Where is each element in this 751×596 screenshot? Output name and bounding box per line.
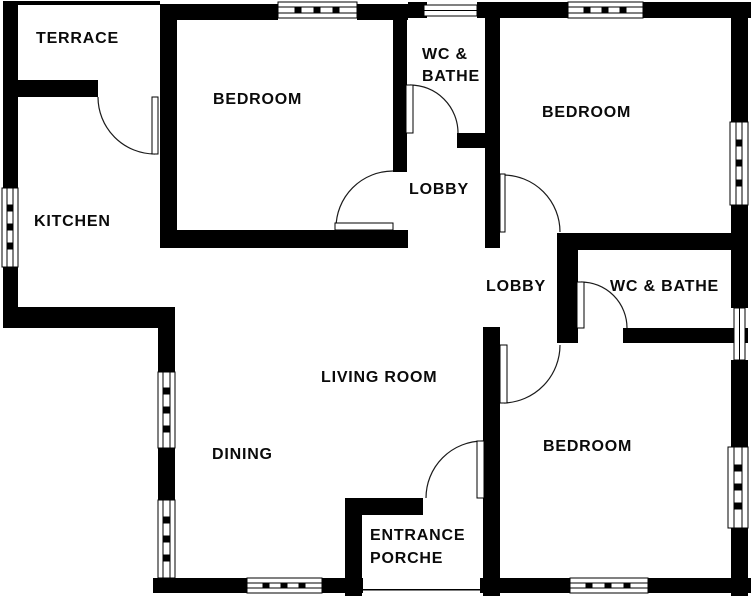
wall-porch-west bbox=[345, 498, 362, 596]
window-bedroom3-south-icon bbox=[570, 578, 648, 593]
wall-west-outer bbox=[3, 3, 18, 328]
window-kitchen-west-icon bbox=[2, 188, 18, 267]
wall-spine-lower bbox=[483, 327, 500, 596]
wall-bedroom1-south bbox=[160, 230, 408, 248]
room-label-entrance-porch: ENTRANCE PORCHE bbox=[370, 524, 465, 570]
room-label-living-room: LIVING ROOM bbox=[321, 370, 437, 386]
room-label-dining: DINING bbox=[212, 447, 273, 463]
window-dining-west-lower-icon bbox=[158, 500, 175, 578]
door-living-lobby-top bbox=[335, 171, 393, 230]
floor-plan: TERRACE BEDROOM WC & BATHE BEDROOM KITCH… bbox=[0, 0, 751, 596]
door-bedroom-top-right bbox=[500, 174, 560, 232]
door-entrance-front bbox=[426, 441, 484, 498]
porch-step-line bbox=[363, 589, 480, 591]
door-bedroom-bottom-right bbox=[500, 345, 560, 403]
window-dining-west-upper-icon bbox=[158, 372, 175, 448]
room-label-bedroom-top-left: BEDROOM bbox=[213, 92, 302, 108]
door-terrace-kitchen bbox=[98, 97, 158, 154]
door-leaf bbox=[152, 97, 158, 154]
room-label-bedroom-top-right: BEDROOM bbox=[542, 105, 631, 121]
wall-east-2 bbox=[731, 205, 748, 308]
room-label-kitchen: KITCHEN bbox=[34, 214, 111, 230]
wall-south-1 bbox=[153, 578, 247, 593]
door-arc bbox=[98, 97, 155, 154]
wall-bedroom1-east bbox=[393, 15, 407, 172]
wall-bedroom2-south bbox=[557, 233, 748, 250]
door-wc-bathe-top bbox=[406, 85, 458, 133]
room-label-lobby-top: LOBBY bbox=[409, 182, 469, 198]
wall-bedroom1-west bbox=[160, 4, 177, 248]
door-leaf bbox=[477, 441, 484, 498]
wall-lobby2-east bbox=[557, 233, 578, 343]
room-label-wc-bathe-right: WC & BATHE bbox=[610, 279, 719, 295]
wall-north-4 bbox=[477, 2, 568, 18]
room-label-terrace: TERRACE bbox=[36, 31, 119, 47]
window-wc1-north-icon bbox=[424, 5, 477, 16]
wall-east-1 bbox=[731, 3, 748, 122]
door-arc bbox=[503, 175, 560, 232]
doors bbox=[98, 85, 627, 498]
door-leaf bbox=[500, 345, 507, 403]
wall-wc2-south bbox=[623, 328, 748, 343]
window-bedroom2-east-icon bbox=[730, 122, 748, 205]
door-leaf bbox=[577, 282, 584, 328]
window-bedroom2-north-icon bbox=[568, 2, 643, 18]
walls bbox=[3, 1, 751, 596]
wall-east-3 bbox=[731, 360, 748, 447]
door-arc bbox=[336, 171, 393, 228]
room-label-bedroom-bottom-right: BEDROOM bbox=[543, 439, 632, 455]
door-arc bbox=[504, 345, 560, 403]
wall-spine-upper bbox=[485, 17, 500, 248]
room-label-entrance-porch-line2: PORCHE bbox=[370, 547, 465, 570]
room-label-wc-bathe-top-line1: WC & bbox=[422, 44, 480, 66]
floor-plan-structure bbox=[0, 0, 751, 596]
window-wc2-east-icon bbox=[734, 308, 745, 360]
door-leaf bbox=[500, 174, 505, 232]
window-bedroom3-east-icon bbox=[728, 447, 748, 528]
door-leaf bbox=[335, 223, 393, 230]
room-label-lobby-right: LOBBY bbox=[486, 279, 546, 295]
wall-west-main-pier bbox=[158, 448, 175, 500]
wall-kitchen-south bbox=[3, 307, 175, 328]
wall-terrace-kitchen bbox=[3, 80, 98, 97]
door-arc bbox=[410, 85, 458, 133]
window-dining-south-icon bbox=[247, 578, 322, 593]
wall-terrace-north bbox=[3, 1, 160, 5]
window-bedroom1-north-icon bbox=[278, 2, 357, 18]
room-label-wc-bathe-top-line2: BATHE bbox=[422, 66, 480, 88]
wall-north-1 bbox=[160, 4, 278, 20]
room-label-wc-bathe-top: WC & BATHE bbox=[422, 44, 480, 88]
wall-east-4 bbox=[731, 528, 748, 596]
wall-west-main-upper bbox=[158, 307, 175, 372]
room-label-entrance-porch-line1: ENTRANCE bbox=[370, 524, 465, 547]
door-leaf bbox=[406, 85, 413, 133]
door-arc bbox=[426, 441, 483, 498]
